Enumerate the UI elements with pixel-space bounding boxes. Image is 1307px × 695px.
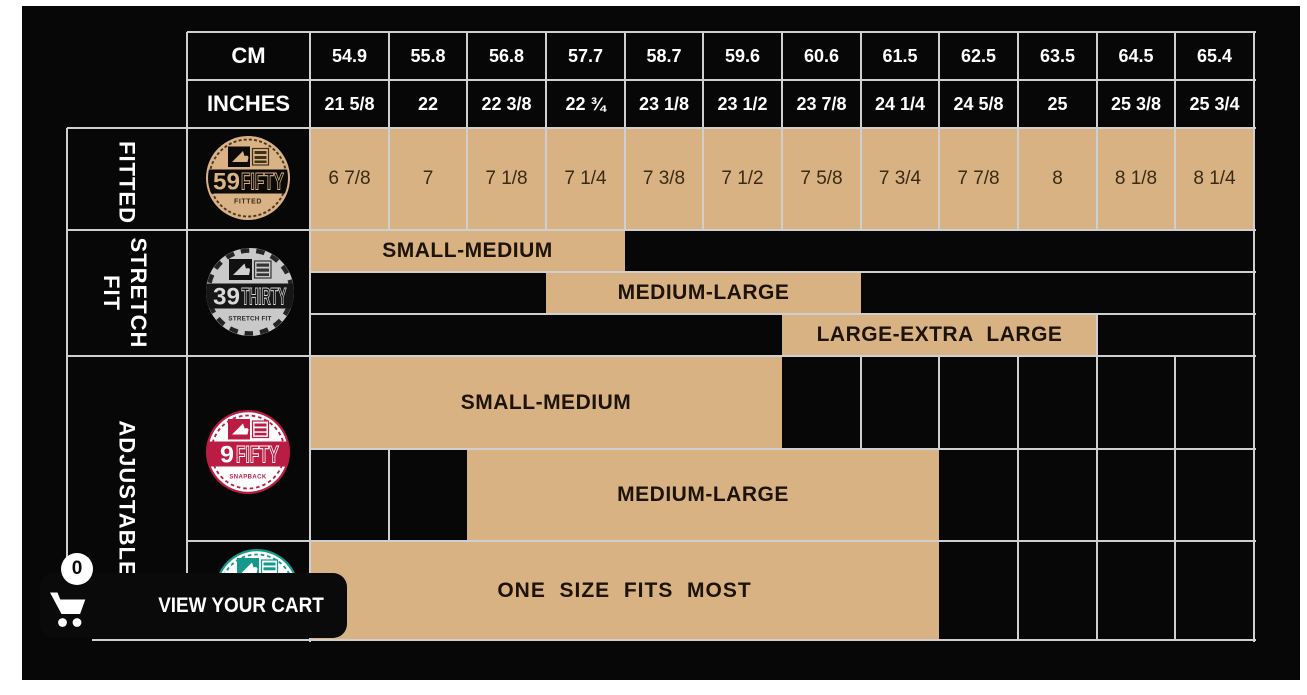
svg-text:THIRTY: THIRTY (242, 284, 287, 311)
svg-text:9: 9 (220, 442, 234, 469)
svg-text:59: 59 (213, 169, 240, 196)
svg-text:FIFTY: FIFTY (236, 442, 279, 469)
svg-text:FIFTY: FIFTY (241, 169, 284, 196)
svg-text:SNAPBACK: SNAPBACK (229, 475, 266, 481)
svg-text:STRETCH FIT: STRETCH FIT (228, 316, 271, 323)
svg-text:39: 39 (213, 284, 240, 311)
svg-text:FITTED: FITTED (234, 199, 262, 206)
